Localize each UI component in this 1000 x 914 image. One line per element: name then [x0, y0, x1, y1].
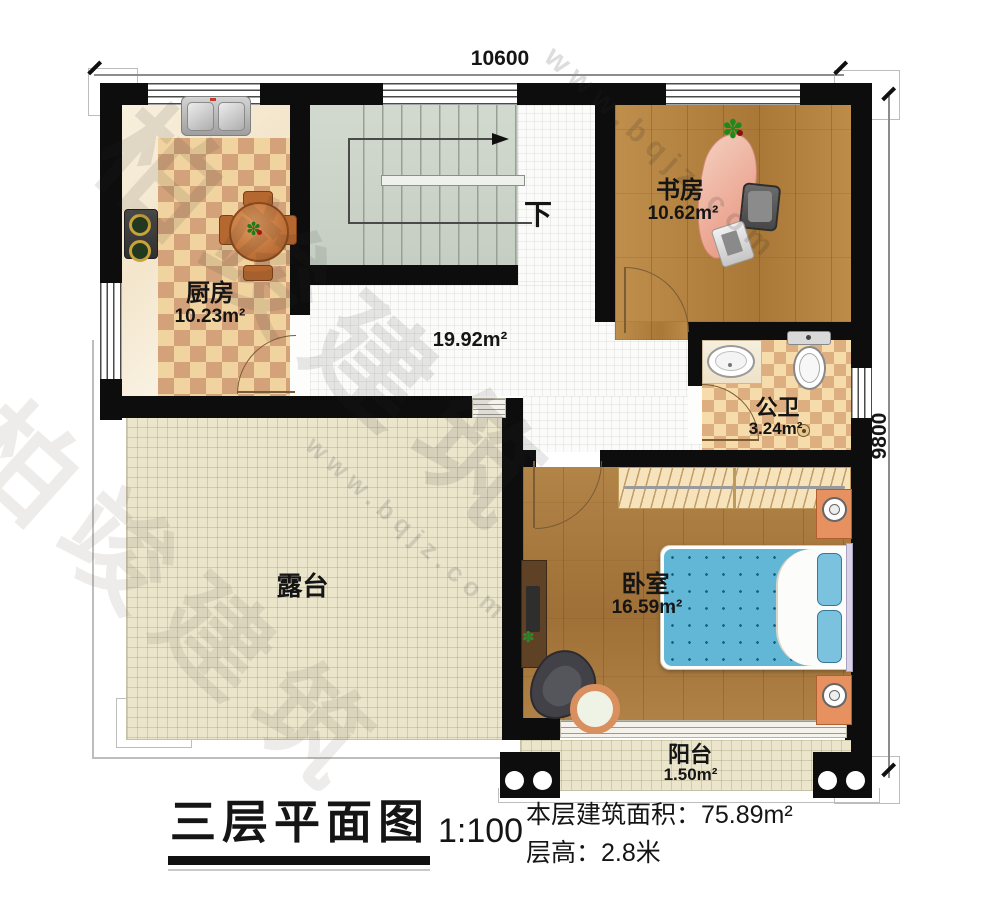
extension-line-bottom-left [92, 757, 512, 759]
terrace-label: 露台 [255, 573, 350, 600]
sink-basin-left [187, 102, 214, 131]
bathroom-area: 3.24m² [733, 420, 818, 438]
hallway-tile-lower [523, 396, 702, 452]
study-area: 10.62m² [628, 204, 738, 224]
bathroom-sink-drain [728, 363, 732, 367]
nightstand-lamp-inner [829, 504, 840, 515]
stove-burner [129, 214, 151, 236]
sink-basin-right [218, 102, 245, 131]
wall-study-left [595, 105, 615, 322]
hallway-tile-upper [518, 105, 595, 287]
toilet-button [806, 335, 811, 340]
balcony-column [818, 771, 837, 790]
window-stairs-top [383, 83, 517, 105]
study-door-leaf [624, 267, 626, 333]
terrace-sliding-door [472, 398, 506, 418]
wall-study-bottom [688, 322, 872, 340]
balcony-column [846, 771, 865, 790]
kitchen-area: 10.23m² [160, 307, 260, 327]
wall-bathroom-left [688, 340, 702, 386]
floorplan-canvas: ✽ ✽ ✽ 厨房 10.23m² 书房 10.62m² 公卫 3.24m² 19… [0, 0, 1000, 914]
wardrobe-divider [733, 467, 736, 509]
stair-direction-arrow [492, 133, 509, 145]
bathroom-door-opening [688, 386, 702, 444]
wall-stairs-bottom [310, 265, 518, 285]
bathroom-label: 公卫 [735, 396, 820, 419]
sink-faucet [210, 98, 216, 101]
balcony-column [533, 771, 552, 790]
bedroom-area: 16.59m² [592, 598, 702, 618]
stair-path-top [348, 138, 496, 140]
stair-path-bottom [348, 222, 532, 224]
bedroom-label: 卧室 [598, 572, 693, 597]
wall-bedroom-top [600, 450, 872, 467]
building-area-text: 本层建筑面积：75.89m² [526, 802, 793, 828]
floor-height-text: 层高：2.8米 [526, 840, 661, 866]
wall-kitchen-right [290, 83, 310, 315]
extension-line-left [92, 340, 94, 758]
bed-headboard [846, 543, 853, 672]
dining-chair [243, 265, 273, 281]
window-study-top [666, 83, 800, 105]
study-plant-center [737, 130, 743, 136]
stair-direction-label: 下 [520, 200, 556, 229]
bathroom-sink-bowl [715, 351, 747, 371]
dimension-right-label: 9800 [869, 386, 891, 486]
bathroom-door-leaf [702, 439, 759, 441]
plan-scale: 1:100 [438, 814, 523, 850]
nightstand-lamp-inner [829, 690, 840, 701]
wall-bedroom-bottom-left [523, 718, 560, 740]
title-underline [168, 856, 430, 865]
stove-burner [129, 240, 151, 262]
balcony-column [505, 771, 524, 790]
table-plant-center [257, 230, 262, 235]
hallway-area: 19.92m² [410, 330, 530, 351]
bedroom-plant-icon: ✽ [522, 630, 535, 646]
bedroom-monitor-symbol [526, 586, 540, 632]
bedroom-door-leaf [533, 461, 535, 528]
study-label: 书房 [630, 178, 730, 203]
bed-pillow [817, 553, 842, 606]
dimension-top-label: 10600 [450, 48, 550, 70]
balcony-area: 1.50m² [648, 766, 733, 784]
window-kitchen-left [100, 283, 122, 379]
dimension-line-top [94, 74, 844, 76]
toilet-bowl-inner [799, 353, 820, 383]
bed-pillow [817, 610, 842, 663]
stair-railing [381, 175, 525, 186]
plan-title: 三层平面图 [170, 798, 430, 846]
bedroom-rug-symbol [570, 684, 620, 734]
study-chair-seat [748, 191, 772, 222]
wall-kitchen-bottom [100, 396, 472, 418]
kitchen-door-leaf [237, 391, 295, 393]
stair-path-side [348, 138, 350, 224]
balcony-label: 阳台 [645, 743, 735, 766]
title-underline-shadow [168, 869, 430, 871]
kitchen-label: 厨房 [160, 281, 260, 306]
